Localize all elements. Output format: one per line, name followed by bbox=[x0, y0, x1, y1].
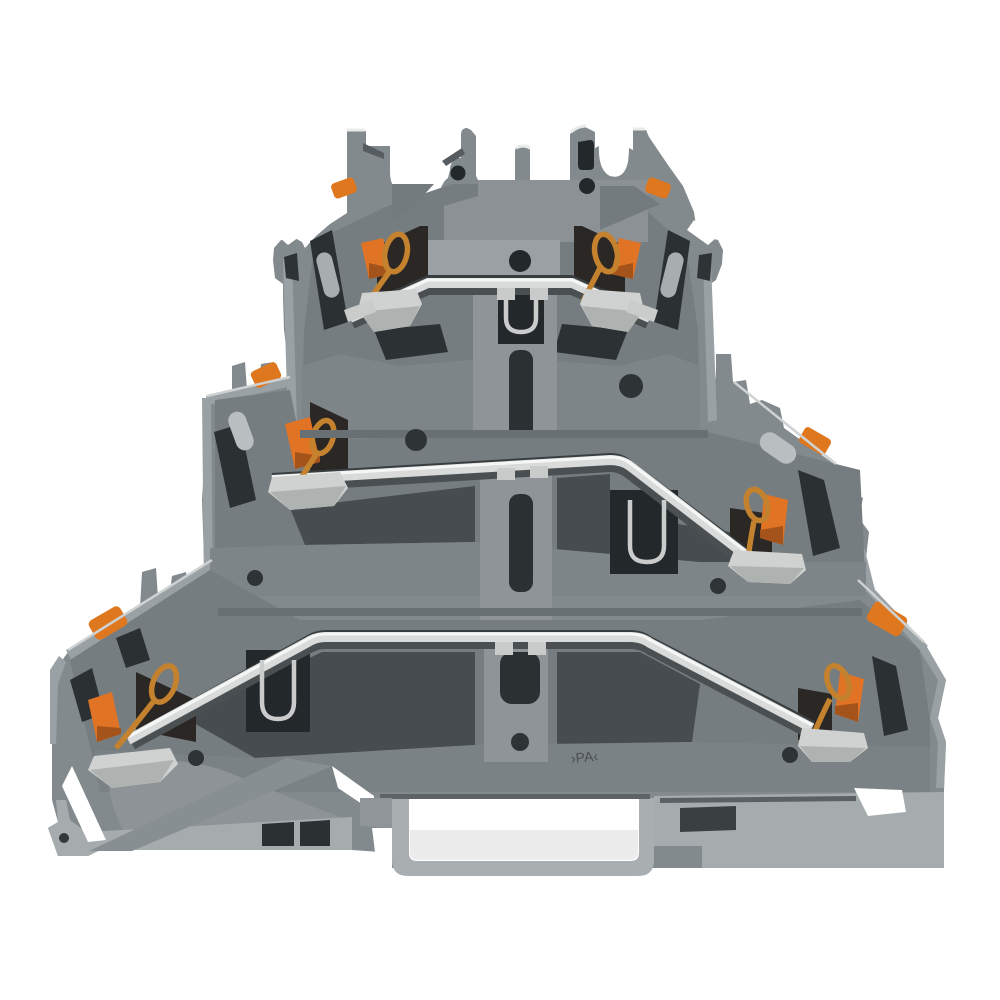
svg-text:›PA‹: ›PA‹ bbox=[570, 748, 599, 767]
